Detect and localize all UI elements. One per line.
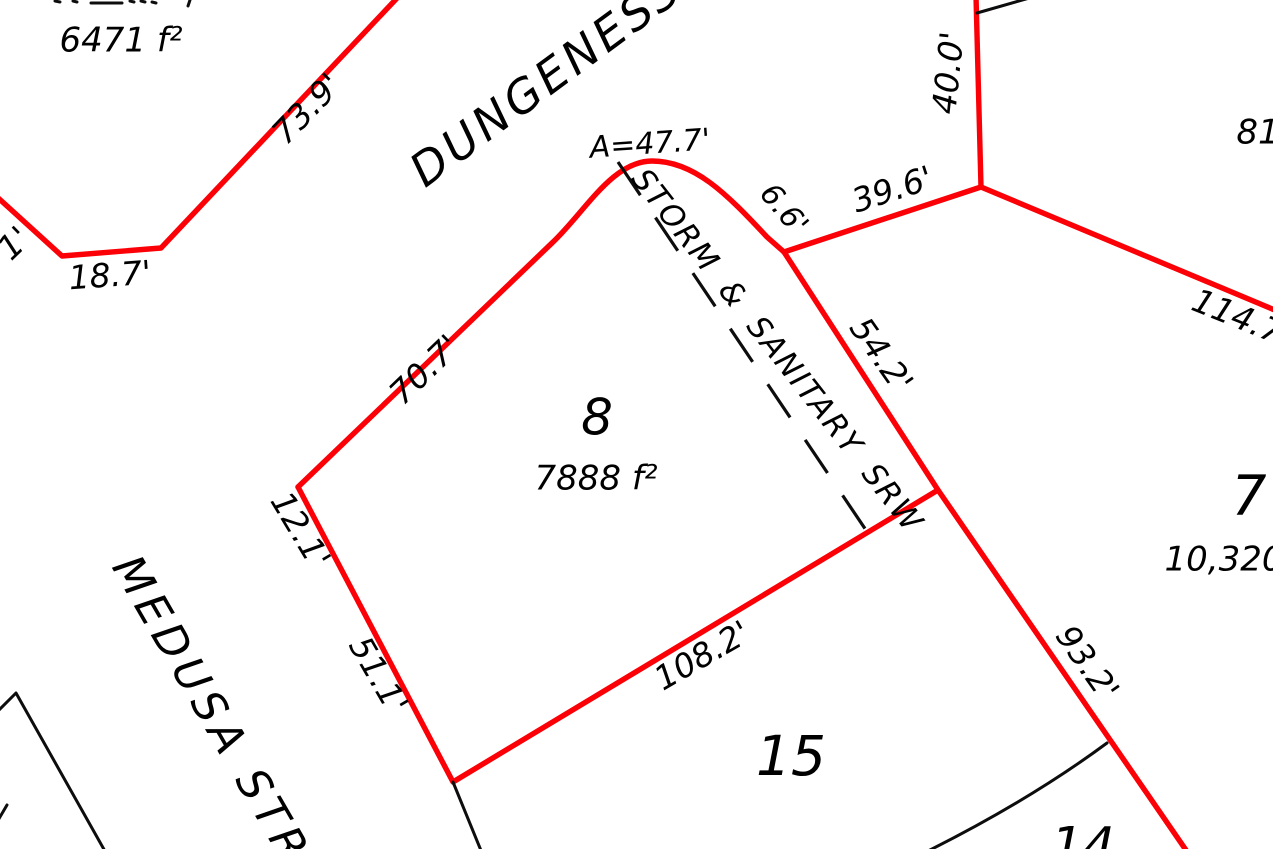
dimension-81-fragment: 81	[1236, 113, 1273, 153]
boundary-40-0	[976, 0, 981, 187]
southwest-triangle-lot	[0, 693, 106, 849]
plat-map-svg: DUNGENESS MEDUSA STR STORM & SANITARY SR…	[0, 0, 1273, 849]
dimension-54-2: 54.2'	[842, 310, 921, 400]
top-edge-text-fragments	[55, 0, 190, 6]
lot-northwest-area: 6471 f²	[60, 21, 183, 61]
lot-line-below-corner	[453, 782, 482, 849]
lot8-number: 8	[581, 389, 613, 447]
dimension-12-1: 12.1'	[263, 485, 339, 576]
street-name-medusa: MEDUSA STR	[102, 547, 321, 849]
boundary-lot8-east	[784, 252, 1188, 849]
dimension-18-7: 18.7'	[67, 253, 152, 298]
lot15-number: 15	[756, 724, 826, 788]
dimension-40-0: 40.0'	[924, 30, 971, 116]
boundary-lot8-west-and-arc	[298, 161, 784, 487]
dimension-114-7: 114.7	[1187, 280, 1273, 352]
lot-line-top-right	[977, 0, 1033, 13]
lot14-number: 14	[1051, 817, 1115, 849]
dimension-108-2: 108.2'	[647, 612, 756, 698]
left-edge-line-fragment	[0, 805, 7, 822]
lot7-area: 10,320	[1165, 540, 1273, 580]
dimension-51-1: 51.1'	[341, 629, 416, 720]
boundary-lot8-southwest-south	[298, 487, 938, 782]
lot8-area: 7888 f²	[535, 459, 658, 499]
dimension-arc-a-47-7: A=47.7'	[587, 122, 712, 165]
plat-map-canvas: DUNGENESS MEDUSA STR STORM & SANITARY SR…	[0, 0, 1273, 849]
dimension-39-6: 39.6'	[847, 158, 938, 221]
lot7-number: 7	[1232, 464, 1267, 528]
dimension-73-9: 73.9'	[264, 65, 349, 151]
